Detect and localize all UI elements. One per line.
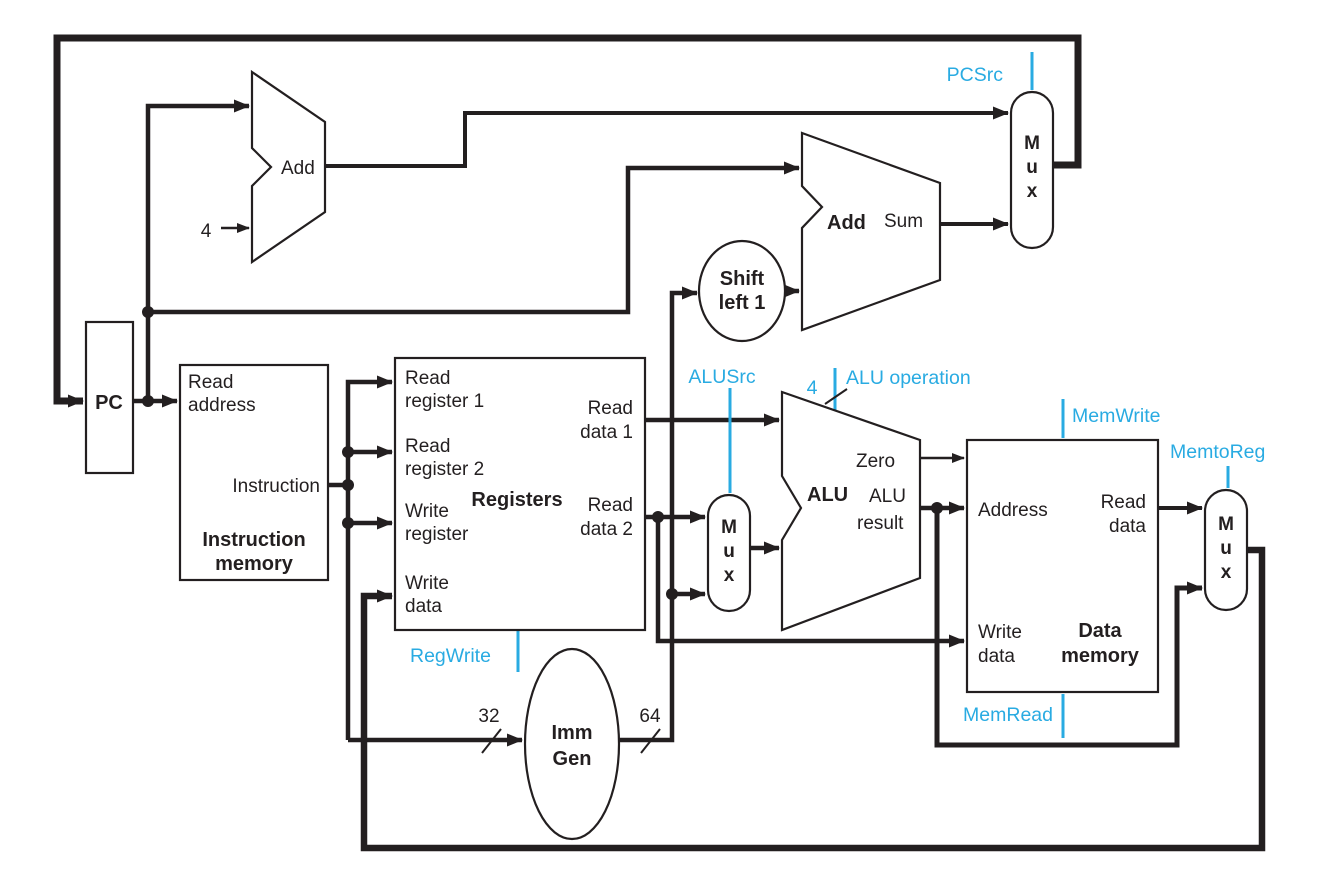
im-title-1: Instruction	[202, 529, 305, 551]
dm-read-data-a: Read	[1101, 492, 1146, 513]
im-read-address-1: Read	[188, 372, 233, 393]
imm-gen	[525, 649, 619, 839]
shift-left-1	[699, 241, 785, 341]
reg-write-data-a: Write	[405, 573, 449, 594]
reg-read-register-2b: register 2	[405, 459, 484, 480]
pc-adder-label: Add	[281, 158, 315, 179]
shift-left-label-1: Shift	[720, 268, 765, 290]
constant-4-label: 4	[201, 221, 212, 242]
imm-width-64: 64	[639, 706, 661, 727]
imm-gen-label-1: Imm	[551, 722, 592, 744]
im-instruction-port: Instruction	[232, 476, 320, 497]
junction-read-data-2	[652, 511, 664, 523]
im-title-2: memory	[215, 553, 294, 575]
junction-instr-wr	[342, 517, 354, 529]
imm-gen-label-2: Gen	[553, 748, 592, 770]
alu-operation-width: 4	[807, 377, 818, 399]
datapath-diagram: PC Add 4 Add Sum Shift left 1 Read addre…	[0, 0, 1330, 873]
memtoreg-mux-m: M	[1218, 514, 1234, 535]
junction-instr-out	[342, 479, 354, 491]
memwrite-label: MemWrite	[1072, 405, 1160, 427]
alu-result-label-1: ALU	[869, 486, 906, 507]
sum-label: Sum	[884, 211, 923, 232]
pcsrc-mux-m: M	[1024, 133, 1040, 154]
memtoreg-mux-u: u	[1220, 538, 1232, 559]
memtoreg-label: MemtoReg	[1170, 441, 1265, 463]
wire-pc-to-pc-adder	[148, 106, 249, 401]
junction-pc-branch	[142, 306, 154, 318]
alusrc-mux-x: x	[724, 565, 735, 586]
reg-read-register-2a: Read	[405, 436, 450, 457]
reg-write-register-b: register	[405, 524, 469, 545]
reg-read-data-1a: Read	[588, 398, 633, 419]
pcsrc-label: PCSrc	[947, 64, 1004, 86]
alu-zero-label: Zero	[856, 451, 895, 472]
junction-pc-out	[142, 395, 154, 407]
junction-imm-mux	[666, 588, 678, 600]
datapath-figure: PC Add 4 Add Sum Shift left 1 Read addre…	[0, 0, 1330, 873]
im-read-address-2: address	[188, 395, 256, 416]
alu	[782, 392, 920, 630]
registers-title: Registers	[471, 489, 562, 511]
branch-adder-label: Add	[827, 212, 866, 234]
alu-result-label-2: result	[857, 513, 904, 534]
alu-title: ALU	[807, 484, 848, 506]
reg-read-data-2a: Read	[588, 495, 633, 516]
junction-alu-result	[931, 502, 943, 514]
wire-pc-adder-to-pcsrc-mux	[325, 113, 1008, 166]
reg-write-register-a: Write	[405, 501, 449, 522]
dm-read-data-b: data	[1109, 516, 1146, 537]
alusrc-mux-u: u	[723, 541, 735, 562]
alusrc-mux-m: M	[721, 517, 737, 538]
regwrite-label: RegWrite	[410, 645, 491, 667]
alusrc-label: ALUSrc	[688, 366, 755, 388]
reg-read-register-1b: register 1	[405, 391, 484, 412]
dm-address-label: Address	[978, 500, 1048, 521]
dm-title-2: memory	[1061, 645, 1140, 667]
memread-label: MemRead	[963, 704, 1053, 726]
reg-write-data-b: data	[405, 596, 442, 617]
pc-label: PC	[95, 392, 123, 414]
wire-instruction-bus	[348, 382, 392, 740]
dm-title-1: Data	[1078, 620, 1122, 642]
shift-left-label-2: left 1	[719, 292, 766, 314]
junction-instr-rr2	[342, 446, 354, 458]
alu-operation-label: ALU operation	[846, 367, 971, 389]
reg-read-data-2b: data 2	[580, 519, 633, 540]
imm-width-32: 32	[478, 706, 499, 727]
reg-read-data-1b: data 1	[580, 422, 633, 443]
pcsrc-mux-u: u	[1026, 157, 1038, 178]
pcsrc-mux-x: x	[1027, 181, 1038, 202]
dm-write-data-b: data	[978, 646, 1015, 667]
dm-write-data-a: Write	[978, 622, 1022, 643]
reg-read-register-1a: Read	[405, 368, 450, 389]
memtoreg-mux-x: x	[1221, 562, 1232, 583]
